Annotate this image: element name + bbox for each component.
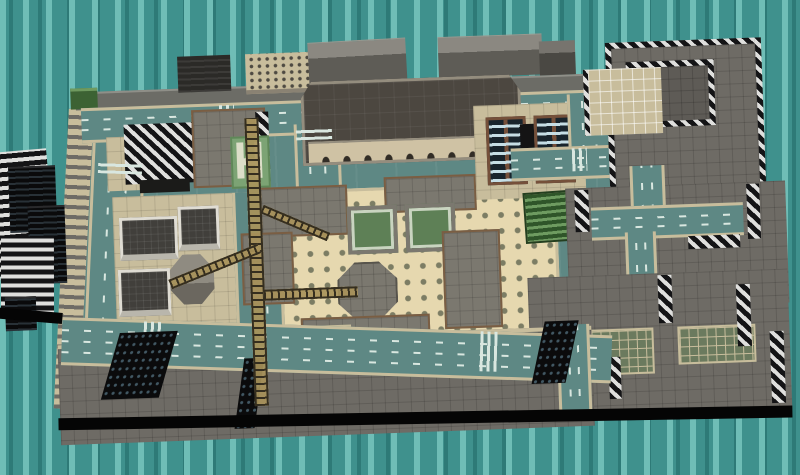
striped-parapet-5: [736, 284, 752, 346]
viewport-3d[interactable]: [0, 0, 800, 475]
dark-office-block: [177, 55, 231, 93]
ramp-descent: [539, 40, 576, 75]
cube-building-1: [119, 216, 179, 261]
elevated-ramp-east: [438, 33, 543, 78]
crosswalk-south-east: [479, 331, 497, 372]
green-courtyard-1: [347, 205, 399, 255]
cube-building-2: [178, 205, 221, 250]
striped-parapet-1: [574, 190, 590, 232]
striped-parapet-6: [770, 331, 787, 403]
dark-lot: [140, 178, 190, 193]
crosswalk-east: [572, 148, 588, 172]
city-model: [41, 33, 797, 452]
green-shed: [70, 88, 98, 110]
cube-building-3: [118, 268, 172, 317]
striped-parapet-3: [746, 183, 761, 238]
striped-parapet-2: [688, 234, 740, 249]
crosswalk-west-avenue: [98, 161, 142, 174]
crosswalk-center: [296, 127, 332, 140]
tan-grid-courtyard: [583, 67, 663, 136]
plaza-roof-east: [442, 229, 504, 329]
striped-parapet-4: [657, 275, 673, 323]
